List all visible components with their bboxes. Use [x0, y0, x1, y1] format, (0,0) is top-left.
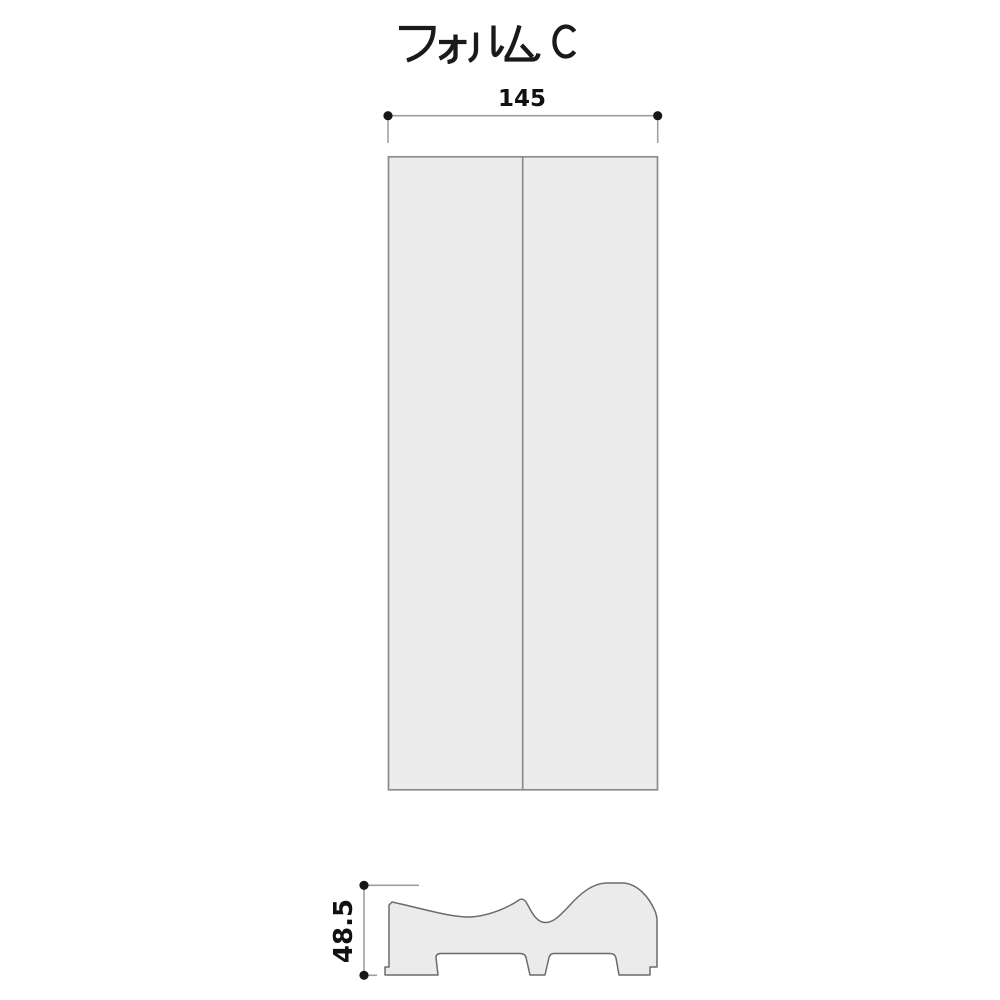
title-glyph-fu — [399, 28, 434, 61]
height-dimension-dot-bottom — [359, 971, 368, 980]
page-title — [399, 26, 575, 63]
technical-drawing: 145 48.5 — [0, 0, 1000, 1000]
width-dimension-dot-right — [653, 111, 662, 120]
title-glyph-small-o — [439, 35, 467, 63]
width-dimension: 145 — [383, 86, 662, 143]
title-glyph-ru — [469, 26, 503, 62]
title-glyph-mu — [505, 26, 539, 60]
section-view — [385, 883, 657, 975]
width-dimension-dot-left — [383, 111, 392, 120]
title-glyph-c — [554, 27, 574, 57]
top-view — [389, 157, 658, 790]
height-dimension-label: 48.5 — [329, 899, 359, 963]
height-dimension-dot-top — [359, 881, 368, 890]
molding-profile — [385, 883, 657, 975]
width-dimension-label: 145 — [498, 86, 546, 112]
diagram-canvas: フォルム C — [0, 0, 1000, 1000]
